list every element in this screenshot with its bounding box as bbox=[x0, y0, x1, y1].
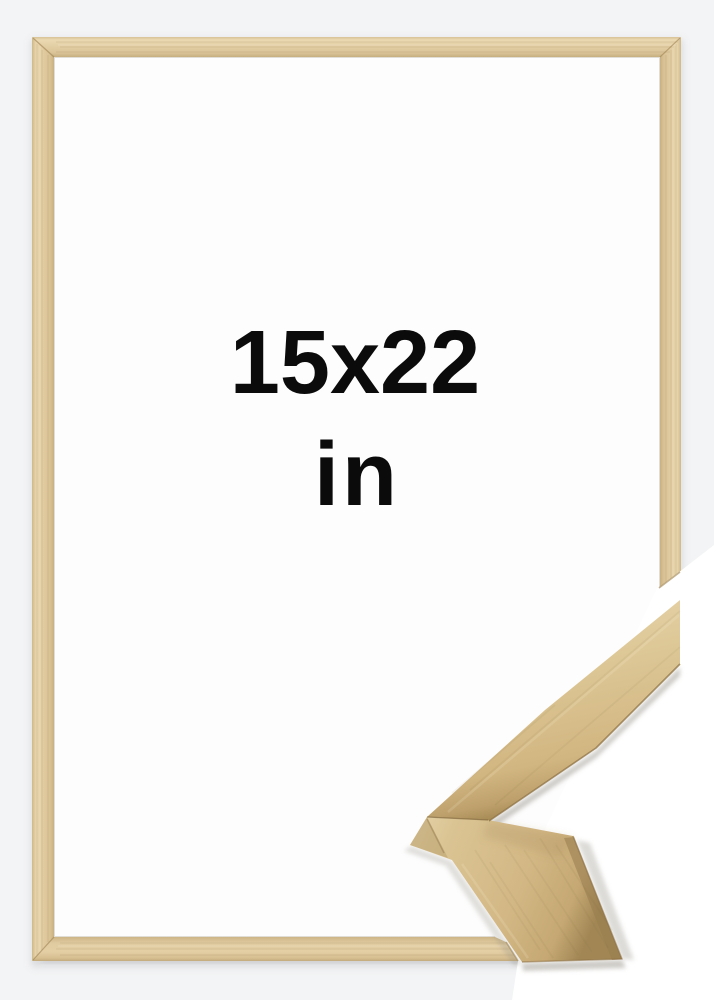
svg-text:in: in bbox=[314, 425, 400, 525]
svg-text:15x22: 15x22 bbox=[230, 313, 480, 413]
